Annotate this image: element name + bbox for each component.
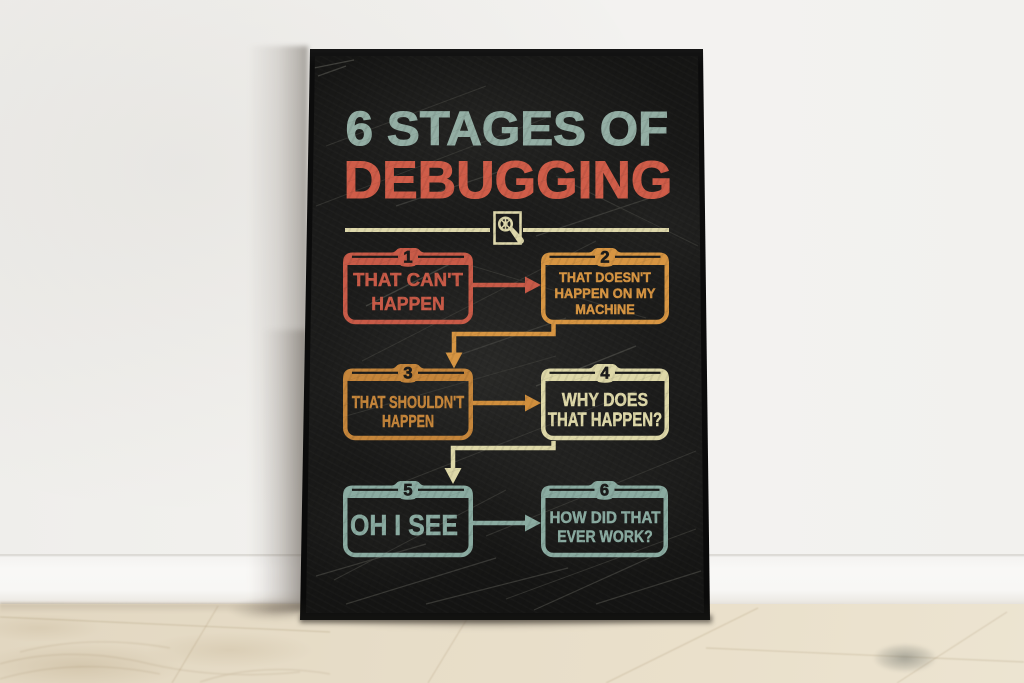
svg-text:3: 3 (403, 365, 412, 383)
svg-text:6: 6 (600, 482, 609, 500)
svg-text:5: 5 (403, 482, 412, 500)
svg-text:4: 4 (600, 365, 610, 383)
svg-text:1: 1 (403, 248, 412, 266)
svg-text:2: 2 (600, 248, 609, 266)
